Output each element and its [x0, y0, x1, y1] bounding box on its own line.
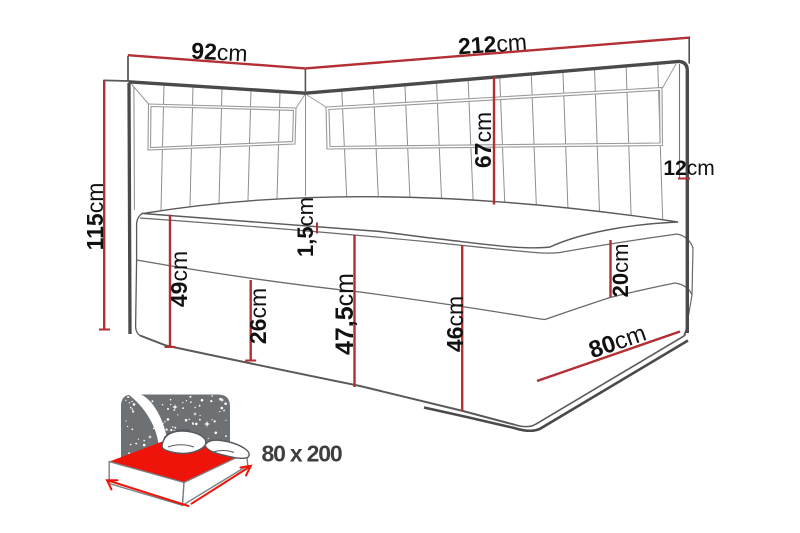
- svg-text:12cm: 12cm: [663, 157, 714, 180]
- svg-text:49cm: 49cm: [166, 251, 192, 307]
- svg-text:26cm: 26cm: [245, 288, 271, 344]
- svg-text:212cm: 212cm: [457, 29, 528, 60]
- svg-text:92cm: 92cm: [191, 38, 249, 67]
- svg-text:115cm: 115cm: [82, 183, 108, 251]
- svg-text:47,5cm: 47,5cm: [331, 273, 359, 355]
- svg-text:67cm: 67cm: [470, 112, 496, 168]
- svg-text:80 x 200: 80 x 200: [262, 441, 342, 467]
- svg-text:1,5cm: 1,5cm: [293, 197, 318, 257]
- svg-text:46cm: 46cm: [442, 296, 468, 352]
- svg-text:20cm: 20cm: [608, 244, 633, 298]
